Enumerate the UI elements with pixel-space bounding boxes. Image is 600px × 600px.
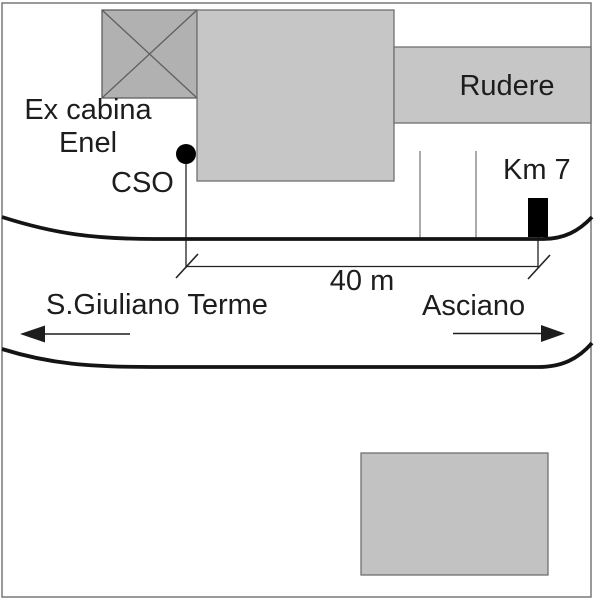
km7-milestone	[528, 198, 548, 237]
ex-cabina-crossed-box	[102, 10, 197, 98]
cso-label: CSO	[111, 169, 174, 198]
km7-label: Km 7	[503, 156, 571, 185]
distance-40m-label: 40 m	[302, 267, 422, 296]
cso-point-dot	[176, 144, 196, 164]
ex-cabina-enel-label: Ex cabina Enel	[8, 94, 168, 160]
arrow-right-head-icon	[541, 325, 565, 342]
bottom-building	[361, 453, 548, 575]
road-edge-bottom	[2, 343, 592, 367]
direction-arrow-right	[453, 325, 565, 342]
main-building	[197, 10, 394, 181]
destination-right-label: Asciano	[422, 292, 525, 321]
ex-cabina-label-line1: Ex cabina	[8, 94, 168, 127]
road-edge-top	[2, 217, 592, 239]
site-sketch-map: Ex cabina Enel CSO Rudere Km 7 40 m S.Gi…	[0, 0, 600, 600]
direction-arrow-left	[20, 326, 130, 343]
rudere-label: Rudere	[417, 72, 597, 101]
ex-cabina-label-line2: Enel	[8, 127, 168, 160]
arrow-left-head-icon	[20, 326, 45, 343]
destination-left-label: S.Giuliano Terme	[46, 291, 268, 320]
